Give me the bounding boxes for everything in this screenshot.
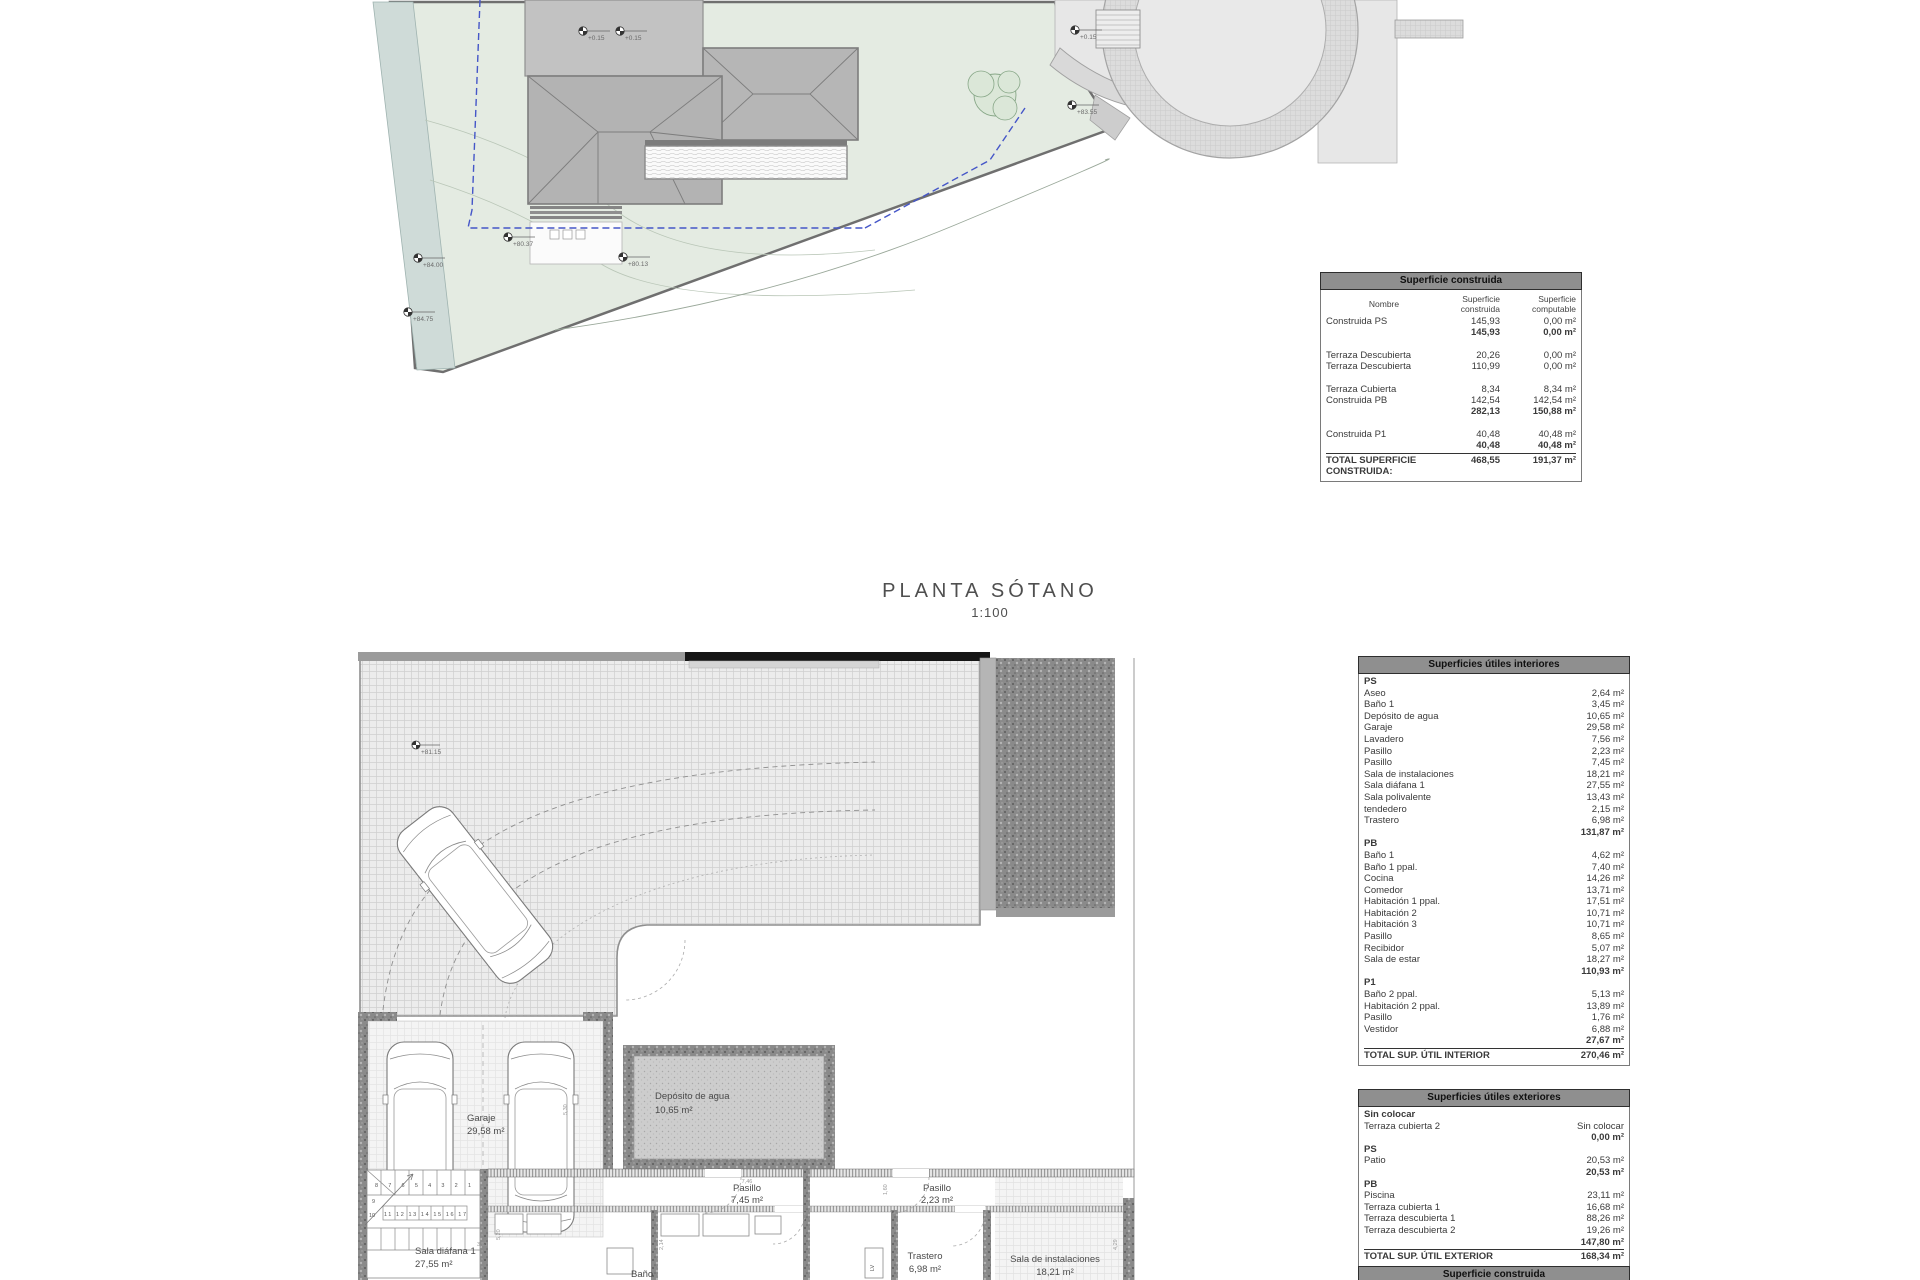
row-label: Terraza Cubierta bbox=[1326, 384, 1442, 395]
room-label: Sala diáfana 1 bbox=[415, 1246, 476, 1257]
column-header: Superficie computable bbox=[1500, 295, 1576, 314]
table-spacer-row bbox=[1326, 418, 1576, 429]
table-row: Terraza Cubierta8,348,34 m² bbox=[1326, 384, 1576, 395]
drawing-sheet: +84.00 +84.75 +80.37 +80.13 +83.55 +0.15… bbox=[0, 0, 1920, 1280]
table-rows: Construida PS145,930,00 m²145,930,00 m²T… bbox=[1326, 316, 1576, 452]
column-header: Superficie construida bbox=[1442, 295, 1500, 314]
row-label: Terraza cubierta 1 bbox=[1364, 1202, 1440, 1214]
row-value: 3,45 m² bbox=[1592, 699, 1624, 711]
row-value: 10,71 m² bbox=[1587, 908, 1625, 920]
group-subtotal: 27,67 m² bbox=[1364, 1035, 1624, 1047]
row-value: 13,71 m² bbox=[1587, 885, 1625, 897]
row-label: Pasillo bbox=[1364, 757, 1392, 769]
row-value: 17,51 m² bbox=[1587, 896, 1625, 908]
row-label: Terraza Descubierta bbox=[1326, 361, 1442, 372]
table-row: Terraza descubierta 219,26 m² bbox=[1364, 1225, 1624, 1237]
row-value: 7,40 m² bbox=[1592, 862, 1624, 874]
row-label: Piscina bbox=[1364, 1190, 1395, 1202]
room-area: 7,45 m² bbox=[731, 1195, 763, 1206]
row-label: Habitación 3 bbox=[1364, 919, 1417, 931]
row-value: 142,54 m² bbox=[1500, 395, 1576, 406]
row-value: 29,58 m² bbox=[1587, 722, 1625, 734]
table-row: Construida P140,4840,48 m² bbox=[1326, 429, 1576, 440]
plan-title: PLANTA SÓTANO bbox=[850, 580, 1130, 603]
row-value: 6,88 m² bbox=[1592, 1024, 1624, 1036]
table-row: 282,13150,88 m² bbox=[1326, 406, 1576, 417]
hip-roof-right-wing bbox=[703, 48, 858, 140]
plan-title-block: PLANTA SÓTANO 1:100 bbox=[850, 580, 1130, 620]
garage-right-wall bbox=[603, 1012, 613, 1174]
row-value: 142,54 bbox=[1442, 395, 1500, 406]
svg-text:5,20: 5,20 bbox=[496, 1229, 502, 1240]
door-opening bbox=[893, 1169, 929, 1177]
svg-text:+81.15: +81.15 bbox=[421, 749, 441, 756]
wall bbox=[1123, 1198, 1134, 1280]
row-label: Recibidor bbox=[1364, 943, 1404, 955]
row-value: 18,27 m² bbox=[1587, 954, 1625, 966]
row-label: Baño 1 ppal. bbox=[1364, 862, 1417, 874]
row-label: Depósito de agua bbox=[1364, 711, 1438, 723]
row-label: Terraza Descubierta bbox=[1326, 350, 1442, 361]
room-label: Sala de instalaciones bbox=[1010, 1254, 1100, 1265]
row-label bbox=[1326, 406, 1442, 417]
row-value: 10,65 m² bbox=[1587, 711, 1625, 723]
row-value: 5,07 m² bbox=[1592, 943, 1624, 955]
group-label: P1 bbox=[1364, 977, 1624, 989]
row-value: 19,26 m² bbox=[1587, 1225, 1625, 1237]
room-area: 10,65 m² bbox=[655, 1105, 693, 1116]
side-wall-cap bbox=[996, 908, 1115, 917]
row-value: 2,23 m² bbox=[1592, 746, 1624, 758]
row-label: Vestidor bbox=[1364, 1024, 1398, 1036]
row-value: 40,48 bbox=[1442, 440, 1500, 451]
row-value: 7,45 m² bbox=[1592, 757, 1624, 769]
room-area: 18,21 m² bbox=[1036, 1267, 1074, 1278]
table-row: Habitación 2 ppal.13,89 m² bbox=[1364, 1001, 1624, 1013]
wall bbox=[488, 1206, 1134, 1212]
row-value: 27,55 m² bbox=[1587, 780, 1625, 792]
table-row: Trastero6,98 m² bbox=[1364, 815, 1624, 827]
room-label: Pasillo bbox=[923, 1183, 951, 1194]
exterior-stairs bbox=[1096, 10, 1140, 48]
row-value: Sin colocar bbox=[1577, 1121, 1624, 1133]
svg-text:+0.15: +0.15 bbox=[1080, 34, 1097, 41]
row-value: 23,11 m² bbox=[1587, 1190, 1624, 1202]
row-label: Cocina bbox=[1364, 873, 1394, 885]
table-title: Superficie construida bbox=[1358, 1266, 1630, 1280]
row-label: Construida P1 bbox=[1326, 429, 1442, 440]
table-title: Superficies útiles exteriores bbox=[1358, 1089, 1630, 1107]
table-row: Habitación 210,71 m² bbox=[1364, 908, 1624, 920]
svg-text:+0.15: +0.15 bbox=[625, 35, 642, 42]
wall bbox=[488, 1169, 1134, 1177]
table-row: Depósito de agua10,65 m² bbox=[1364, 711, 1624, 723]
row-label: Construida PS bbox=[1326, 316, 1442, 327]
table-row: Pasillo2,23 m² bbox=[1364, 746, 1624, 758]
table-rows: PSAseo2,64 m²Baño 13,45 m²Depósito de ag… bbox=[1364, 676, 1624, 1047]
row-value: 0,00 m² bbox=[1500, 350, 1576, 361]
row-value: 6,98 m² bbox=[1592, 815, 1624, 827]
table-row: Construida PB142,54142,54 m² bbox=[1326, 395, 1576, 406]
plan-scale: 1:100 bbox=[850, 605, 1130, 620]
table-total-row: TOTAL SUP. ÚTIL EXTERIOR 168,34 m² bbox=[1364, 1249, 1624, 1263]
svg-text:3,61: 3,61 bbox=[477, 1242, 488, 1248]
row-value: 16,68 m² bbox=[1587, 1202, 1625, 1214]
table-row: Piscina23,11 m² bbox=[1364, 1190, 1624, 1202]
group-label: PS bbox=[1364, 676, 1624, 688]
room-area: 29,58 m² bbox=[467, 1126, 505, 1137]
flat-roof bbox=[525, 0, 703, 76]
table-row: Vestidor6,88 m² bbox=[1364, 1024, 1624, 1036]
wall bbox=[891, 1210, 898, 1280]
row-label bbox=[1326, 440, 1442, 451]
table-row: Comedor13,71 m² bbox=[1364, 885, 1624, 897]
row-label: Patio bbox=[1364, 1155, 1386, 1167]
table-row: Garaje29,58 m² bbox=[1364, 722, 1624, 734]
road-stub bbox=[1395, 20, 1463, 38]
row-value: 8,34 bbox=[1442, 384, 1500, 395]
group-label: PB bbox=[1364, 1179, 1624, 1191]
svg-text:+80.13: +80.13 bbox=[628, 261, 648, 268]
table-row: Sala diáfana 127,55 m² bbox=[1364, 780, 1624, 792]
row-label: Baño 1 bbox=[1364, 699, 1394, 711]
exterior-areas-table: Superficies útiles exteriores Sin coloca… bbox=[1358, 1089, 1630, 1267]
table-row: tendedero2,15 m² bbox=[1364, 804, 1624, 816]
table-row: Baño 2 ppal.5,13 m² bbox=[1364, 989, 1624, 1001]
row-value: 0,00 m² bbox=[1500, 361, 1576, 372]
room-area: 2,23 m² bbox=[921, 1195, 953, 1206]
table-row: Pasillo7,45 m² bbox=[1364, 757, 1624, 769]
table-row: Sala polivalente13,43 m² bbox=[1364, 792, 1624, 804]
row-label: tendedero bbox=[1364, 804, 1407, 816]
group-subtotal: 110,93 m² bbox=[1364, 966, 1624, 978]
table-row: Baño 13,45 m² bbox=[1364, 699, 1624, 711]
row-value: 145,93 bbox=[1442, 327, 1500, 338]
retaining-wall bbox=[980, 658, 996, 910]
row-label: Habitación 2 bbox=[1364, 908, 1417, 920]
table-row: Terraza cubierta 116,68 m² bbox=[1364, 1202, 1624, 1214]
row-label: Habitación 2 ppal. bbox=[1364, 1001, 1440, 1013]
svg-text:+84.00: +84.00 bbox=[423, 262, 443, 269]
row-value: 40,48 bbox=[1442, 429, 1500, 440]
wall bbox=[480, 1169, 488, 1280]
row-label: Sala de estar bbox=[1364, 954, 1420, 966]
row-value: 145,93 bbox=[1442, 316, 1500, 327]
table-row: Terraza Descubierta20,260,00 m² bbox=[1326, 350, 1576, 361]
table-row: Pasillo1,76 m² bbox=[1364, 1012, 1624, 1024]
row-label bbox=[1326, 327, 1442, 338]
room-label: Depósito de agua bbox=[655, 1091, 730, 1102]
svg-text:4,29: 4,29 bbox=[1113, 1239, 1119, 1250]
row-value: 1,76 m² bbox=[1592, 1012, 1624, 1024]
group-label: Sin colocar bbox=[1364, 1109, 1624, 1121]
room-area: 6,98 m² bbox=[909, 1264, 941, 1275]
row-value: 88,26 m² bbox=[1587, 1213, 1625, 1225]
row-label: Garaje bbox=[1364, 722, 1393, 734]
row-value: 13,43 m² bbox=[1587, 792, 1625, 804]
pool-terrace bbox=[645, 140, 847, 179]
row-label: Terraza cubierta 2 bbox=[1364, 1121, 1440, 1133]
row-label: Baño 2 ppal. bbox=[1364, 989, 1417, 1001]
row-value: 110,99 bbox=[1442, 361, 1500, 372]
row-value: 13,89 m² bbox=[1587, 1001, 1625, 1013]
door-opening bbox=[705, 1169, 741, 1177]
row-value: 40,48 m² bbox=[1500, 440, 1576, 451]
door-opening bbox=[775, 1206, 805, 1212]
table-row: 145,930,00 m² bbox=[1326, 327, 1576, 338]
table-title: Superficie construida bbox=[1320, 272, 1582, 290]
table-row: Terraza cubierta 2Sin colocar bbox=[1364, 1121, 1624, 1133]
group-label: PS bbox=[1364, 1144, 1624, 1156]
row-label: Pasillo bbox=[1364, 931, 1392, 943]
row-value: 40,48 m² bbox=[1500, 429, 1576, 440]
table-row: Habitación 1 ppal.17,51 m² bbox=[1364, 896, 1624, 908]
svg-text:1,60: 1,60 bbox=[883, 1184, 889, 1195]
wall bbox=[803, 1169, 810, 1280]
table-row: Baño 1 ppal.7,40 m² bbox=[1364, 862, 1624, 874]
group-subtotal: 147,80 m² bbox=[1364, 1237, 1624, 1249]
row-label: Sala diáfana 1 bbox=[1364, 780, 1425, 792]
table-row: Terraza Descubierta110,990,00 m² bbox=[1326, 361, 1576, 372]
row-value: 0,00 m² bbox=[1500, 316, 1576, 327]
row-value: 8,34 m² bbox=[1500, 384, 1576, 395]
room-label: Trastero bbox=[907, 1251, 942, 1262]
row-label: Baño 1 bbox=[1364, 850, 1394, 862]
appliance-lv bbox=[865, 1248, 883, 1278]
group-subtotal: 20,53 m² bbox=[1364, 1167, 1624, 1179]
row-value: 20,53 m² bbox=[1587, 1155, 1625, 1167]
group-subtotal: 0,00 m² bbox=[1364, 1132, 1624, 1144]
row-label: Terraza descubierta 1 bbox=[1364, 1213, 1455, 1225]
row-value: 7,56 m² bbox=[1592, 734, 1624, 746]
table-total-row: TOTAL SUP. ÚTIL INTERIOR 270,46 m² bbox=[1364, 1048, 1624, 1062]
interior-areas-table: Superficies útiles interiores PSAseo2,64… bbox=[1358, 656, 1630, 1066]
room-label: Baño bbox=[631, 1269, 653, 1280]
left-wall bbox=[358, 1012, 368, 1280]
table-row: Patio20,53 m² bbox=[1364, 1155, 1624, 1167]
column-header: Nombre bbox=[1326, 295, 1442, 314]
group-label: PB bbox=[1364, 838, 1624, 850]
group-subtotal: 131,87 m² bbox=[1364, 827, 1624, 839]
table-row: Recibidor5,07 m² bbox=[1364, 943, 1624, 955]
row-value: 10,71 m² bbox=[1587, 919, 1625, 931]
stair-number: 10 bbox=[369, 1213, 375, 1219]
row-label: Lavadero bbox=[1364, 734, 1404, 746]
row-value: 150,88 m² bbox=[1500, 406, 1576, 417]
row-value: 282,13 bbox=[1442, 406, 1500, 417]
table-column-headers: Nombre Superficie construida Superficie … bbox=[1326, 292, 1576, 316]
stair-number: 9 bbox=[372, 1199, 375, 1205]
row-label: Pasillo bbox=[1364, 1012, 1392, 1024]
table-title: Superficies útiles interiores bbox=[1358, 656, 1630, 674]
row-label: Sala polivalente bbox=[1364, 792, 1431, 804]
table-row: Cocina14,26 m² bbox=[1364, 873, 1624, 885]
row-label: Aseo bbox=[1364, 688, 1386, 700]
table-row: Lavadero7,56 m² bbox=[1364, 734, 1624, 746]
svg-text:7,46: 7,46 bbox=[742, 1179, 753, 1185]
svg-text:5,30: 5,30 bbox=[563, 1104, 569, 1115]
table-row: 40,4840,48 m² bbox=[1326, 440, 1576, 451]
table-spacer-row bbox=[1326, 339, 1576, 350]
row-label: Construida PB bbox=[1326, 395, 1442, 406]
next-table-cropped: Superficie construida bbox=[1358, 1266, 1630, 1280]
table-row: Construida PS145,930,00 m² bbox=[1326, 316, 1576, 327]
basement-floor-plan: +81.15 bbox=[355, 650, 1175, 1280]
svg-text:+83.55: +83.55 bbox=[1077, 109, 1097, 116]
table-row: Habitación 310,71 m² bbox=[1364, 919, 1624, 931]
row-label: Sala de instalaciones bbox=[1364, 769, 1454, 781]
appliance-label: LV bbox=[870, 1265, 876, 1272]
svg-text:2,14: 2,14 bbox=[659, 1239, 665, 1250]
row-label: Pasillo bbox=[1364, 746, 1392, 758]
construida-table: Superficie construida Nombre Superficie … bbox=[1320, 272, 1582, 482]
row-value: 4,62 m² bbox=[1592, 850, 1624, 862]
row-value: 5,13 m² bbox=[1592, 989, 1624, 1001]
table-spacer-row bbox=[1326, 372, 1576, 383]
side-wall-textured bbox=[996, 658, 1115, 908]
table-row: Pasillo8,65 m² bbox=[1364, 931, 1624, 943]
lintel bbox=[689, 661, 879, 668]
table-row: Sala de estar18,27 m² bbox=[1364, 954, 1624, 966]
table-row: Sala de instalaciones18,21 m² bbox=[1364, 769, 1624, 781]
table-row: Terraza descubierta 188,26 m² bbox=[1364, 1213, 1624, 1225]
fixtures bbox=[495, 1214, 883, 1278]
stair-numbers: 8 7 6 5 4 3 2 1 bbox=[375, 1183, 471, 1189]
table-row: Baño 14,62 m² bbox=[1364, 850, 1624, 862]
table-total-row: TOTAL SUPERFICIE CONSTRUIDA: 468,55 191,… bbox=[1326, 453, 1576, 478]
room-area: 27,55 m² bbox=[415, 1259, 453, 1270]
top-wall-gray bbox=[358, 652, 685, 661]
room-label: Garaje bbox=[467, 1113, 496, 1124]
row-label: Trastero bbox=[1364, 815, 1399, 827]
row-value: 2,15 m² bbox=[1592, 804, 1624, 816]
top-wall-black bbox=[685, 652, 990, 661]
table-row: Aseo2,64 m² bbox=[1364, 688, 1624, 700]
row-label: Comedor bbox=[1364, 885, 1403, 897]
row-value: 18,21 m² bbox=[1587, 769, 1625, 781]
row-value: 20,26 bbox=[1442, 350, 1500, 361]
row-value: 14,26 m² bbox=[1587, 873, 1625, 885]
row-label: Habitación 1 ppal. bbox=[1364, 896, 1440, 908]
door-opening bbox=[955, 1206, 985, 1212]
row-value: 2,64 m² bbox=[1592, 688, 1624, 700]
car-icon bbox=[504, 1042, 578, 1232]
svg-text:+0.15: +0.15 bbox=[588, 35, 605, 42]
road-area bbox=[1050, 0, 1463, 163]
row-value: 8,65 m² bbox=[1592, 931, 1624, 943]
svg-text:+84.75: +84.75 bbox=[413, 316, 433, 323]
svg-text:+80.37: +80.37 bbox=[513, 241, 533, 248]
row-label: Terraza descubierta 2 bbox=[1364, 1225, 1455, 1237]
row-value: 0,00 m² bbox=[1500, 327, 1576, 338]
table-rows: Sin colocarTerraza cubierta 2Sin colocar… bbox=[1364, 1109, 1624, 1248]
